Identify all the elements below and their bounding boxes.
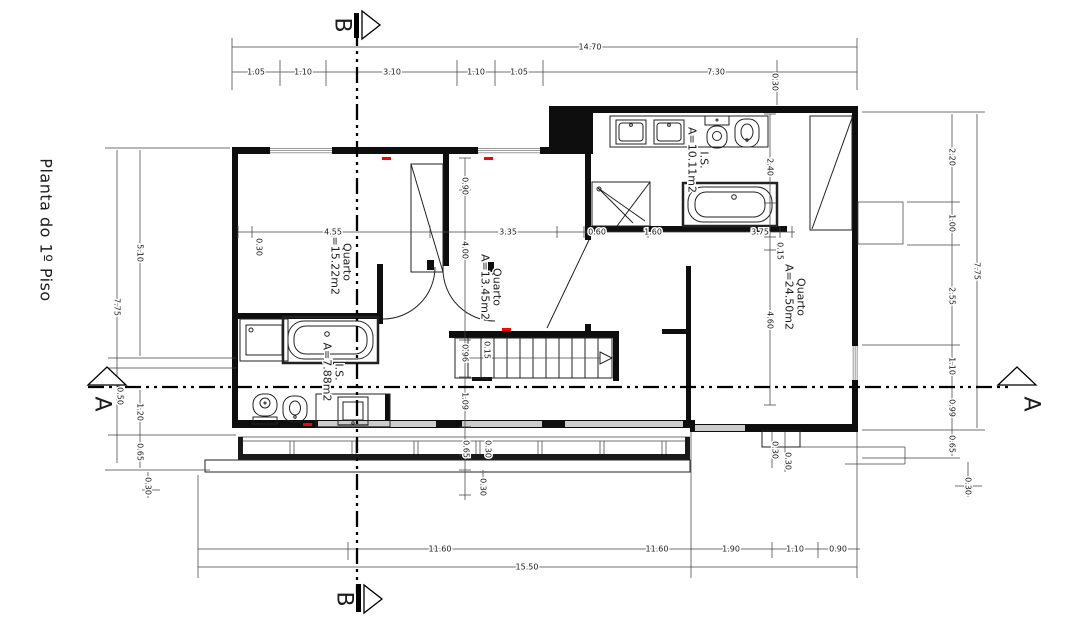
section-letter-b-top: B <box>330 17 355 32</box>
dim-label: 0.30 <box>784 452 793 470</box>
dim-label: 0.65 <box>462 440 471 458</box>
dim-label: 11.60 <box>429 545 452 554</box>
dim-label: 0.65 <box>136 443 145 461</box>
balcony-slab <box>205 460 690 472</box>
dim-label: 1.10 <box>786 545 804 554</box>
dim-label: 1.05 <box>247 68 265 77</box>
bidet-icon <box>735 119 759 147</box>
dim-label: 3.10 <box>383 68 401 77</box>
dim-label: 0.30 <box>255 238 264 256</box>
dim-label: 0.60 <box>588 228 606 237</box>
stairs <box>455 338 612 378</box>
dim-label: 0.65 <box>948 435 957 453</box>
dim-label: 1.00 <box>948 214 957 232</box>
dim-label: 0.90 <box>461 177 470 195</box>
dim-label: 1.09 <box>461 392 470 410</box>
dim-label: 2.20 <box>948 148 957 166</box>
dim-label: 0.30 <box>484 440 493 458</box>
room-area: A=13.45m2 <box>479 254 492 320</box>
dim-label: 0.15 <box>776 242 785 260</box>
dim-label: 0.99 <box>948 399 957 417</box>
dim-label: 0.90 <box>829 545 847 554</box>
door-leaf <box>547 240 589 328</box>
dim-label: 1.20 <box>136 403 145 421</box>
closet-room3 <box>810 116 852 230</box>
sink-icon <box>654 120 684 144</box>
closets <box>411 116 852 272</box>
floor-plan-sheet: Planta do 1º Piso B B A A Quarto A=15.22… <box>0 0 1077 633</box>
room-area: A=10.11m2 <box>686 127 699 193</box>
section-arrow-icon <box>88 367 126 385</box>
toilet-icon <box>253 394 277 424</box>
dim-label: 0.15 <box>483 341 492 359</box>
closet-room1 <box>411 164 443 272</box>
dim-label: 0.30 <box>144 477 153 495</box>
section-arrow-icon <box>364 585 382 613</box>
dim-label: 0.30 <box>964 477 973 495</box>
dim-label: 5.10 <box>136 244 145 262</box>
dim-label: 0.96 <box>461 344 470 362</box>
dim-label: 1.60 <box>644 228 662 237</box>
shower-icon <box>240 319 288 361</box>
dim-label: 3.75 <box>751 228 769 237</box>
floor-plan-drawing: Planta do 1º Piso B B A A Quarto A=15.22… <box>0 0 1077 633</box>
balcony-railing <box>205 431 905 472</box>
dim-label: 4.55 <box>324 228 342 237</box>
dim-label: 11.60 <box>646 545 669 554</box>
shower-icon <box>592 182 650 226</box>
right-step-box <box>762 431 800 447</box>
dim-label: 0.30 <box>771 73 780 91</box>
wall-step <box>858 202 903 244</box>
dim-label: 0.30 <box>771 441 780 459</box>
section-letter-b-bottom: B <box>332 591 357 606</box>
toilet-icon <box>705 116 729 148</box>
section-letter-a-right: A <box>1019 396 1044 411</box>
labels: Planta do 1º Piso B B A A Quarto A=15.22… <box>37 17 1044 606</box>
section-arrow-icon <box>362 11 380 39</box>
door-arc <box>383 267 435 319</box>
stairs-direction-arrow <box>600 352 612 364</box>
dim-label: 0.30 <box>479 478 488 496</box>
room-area: A=24.50m2 <box>783 264 796 330</box>
section-arrow-icon <box>998 367 1036 385</box>
dim-label: 7.75 <box>113 298 122 316</box>
section-lines <box>88 11 1036 613</box>
dim-label: 3.35 <box>499 228 517 237</box>
dim-label: 0.50 <box>116 387 125 405</box>
dim-label: 15.50 <box>516 563 539 572</box>
room-area: A=15.22m2 <box>329 229 342 295</box>
dim-label: 14.70 <box>579 43 602 52</box>
room-area: A=7.88m2 <box>321 343 334 402</box>
section-letter-a-left: A <box>90 396 115 411</box>
dim-label: 1.10 <box>467 68 485 77</box>
dim-label: 1.90 <box>722 545 740 554</box>
dim-label: 2.55 <box>948 287 957 305</box>
drawing-title: Planta do 1º Piso <box>37 158 56 301</box>
dim-label: 7.30 <box>707 68 725 77</box>
dim-label: 4.60 <box>766 311 775 329</box>
dim-label: 2.40 <box>766 158 775 176</box>
sink-icon <box>616 120 646 144</box>
dim-label: 1.10 <box>294 68 312 77</box>
bidet-icon <box>283 396 307 422</box>
dim-label: 7.75 <box>973 262 982 280</box>
dim-label: 1.10 <box>948 357 957 375</box>
dim-label: 4.00 <box>461 241 470 259</box>
dim-label: 1.05 <box>510 68 528 77</box>
